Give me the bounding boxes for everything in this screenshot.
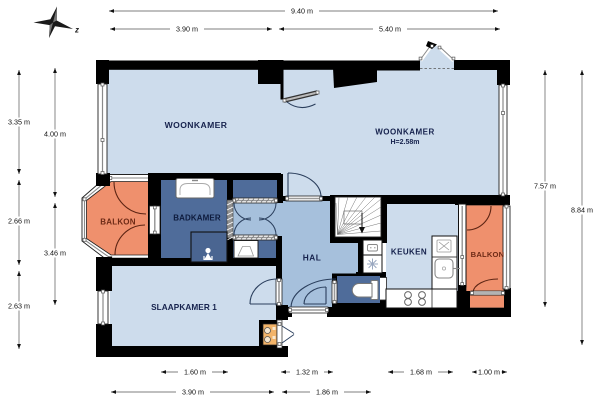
svg-text:BALKON: BALKON [100,218,135,227]
svg-text:3.46 m: 3.46 m [44,249,66,258]
svg-text:2.66 m: 2.66 m [8,217,30,226]
svg-text:WOONKAMER: WOONKAMER [375,128,435,137]
svg-text:4.00 m: 4.00 m [44,130,66,139]
svg-text:SLAAPKAMER 1: SLAAPKAMER 1 [151,303,217,312]
svg-text:7.57 m: 7.57 m [534,182,556,191]
svg-text:WOONKAMER: WOONKAMER [165,120,228,130]
svg-text:9.40 m: 9.40 m [291,7,313,16]
svg-text:1.68 m: 1.68 m [410,368,432,377]
svg-text:2.63 m: 2.63 m [8,302,30,311]
svg-text:H=2.58m: H=2.58m [391,139,420,146]
svg-text:3.90 m: 3.90 m [182,388,204,397]
svg-text:1.00 m: 1.00 m [478,368,500,377]
svg-text:KEUKEN: KEUKEN [391,248,427,257]
svg-text:z: z [74,26,79,35]
svg-text:HAL: HAL [303,253,322,263]
svg-text:1.60 m: 1.60 m [184,368,206,377]
svg-text:BADKAMER: BADKAMER [173,214,221,223]
svg-text:1.32 m: 1.32 m [296,368,318,377]
svg-text:BALKON: BALKON [471,250,505,259]
svg-text:3.35 m: 3.35 m [8,118,30,127]
svg-text:3.90 m: 3.90 m [176,25,198,34]
svg-text:1.86 m: 1.86 m [316,388,338,397]
svg-text:5.40 m: 5.40 m [379,25,401,34]
svg-text:8.84 m: 8.84 m [571,206,593,215]
